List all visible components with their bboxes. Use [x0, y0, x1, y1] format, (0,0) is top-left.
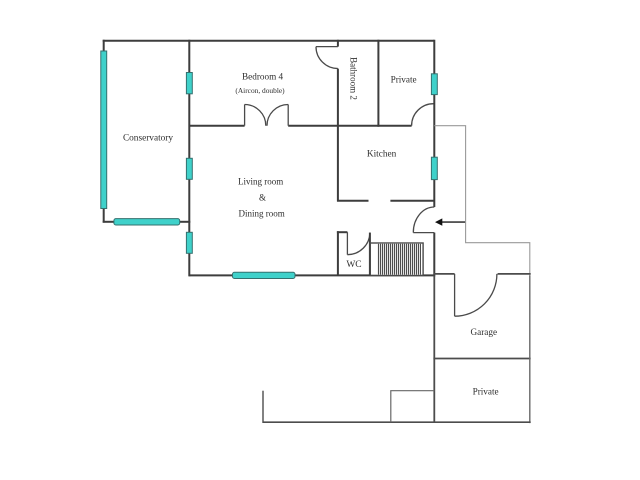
svg-text:Private: Private: [391, 75, 417, 85]
svg-text:Bedroom 4: Bedroom 4: [242, 72, 283, 82]
svg-text:Private: Private: [473, 386, 499, 396]
svg-text:Bathroom 2: Bathroom 2: [349, 57, 359, 100]
svg-text:Conservatory: Conservatory: [123, 133, 173, 143]
svg-text:Dining room: Dining room: [238, 208, 284, 218]
svg-text:WC: WC: [346, 260, 361, 270]
svg-text:(Aircon, double): (Aircon, double): [235, 86, 285, 95]
svg-text:Garage: Garage: [471, 327, 498, 337]
svg-text:Kitchen: Kitchen: [367, 150, 397, 160]
svg-text:&: &: [259, 192, 266, 202]
svg-text:Living room: Living room: [238, 176, 283, 186]
